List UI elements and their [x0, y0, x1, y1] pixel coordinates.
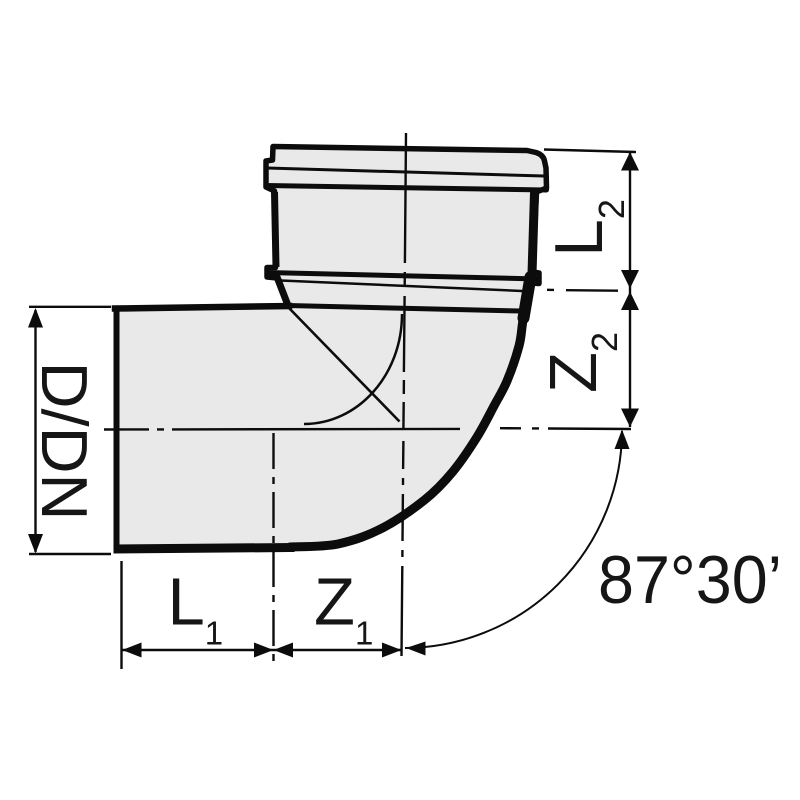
- svg-text:D/DN: D/DN: [28, 362, 101, 521]
- svg-text:87°30’: 87°30’: [598, 542, 782, 618]
